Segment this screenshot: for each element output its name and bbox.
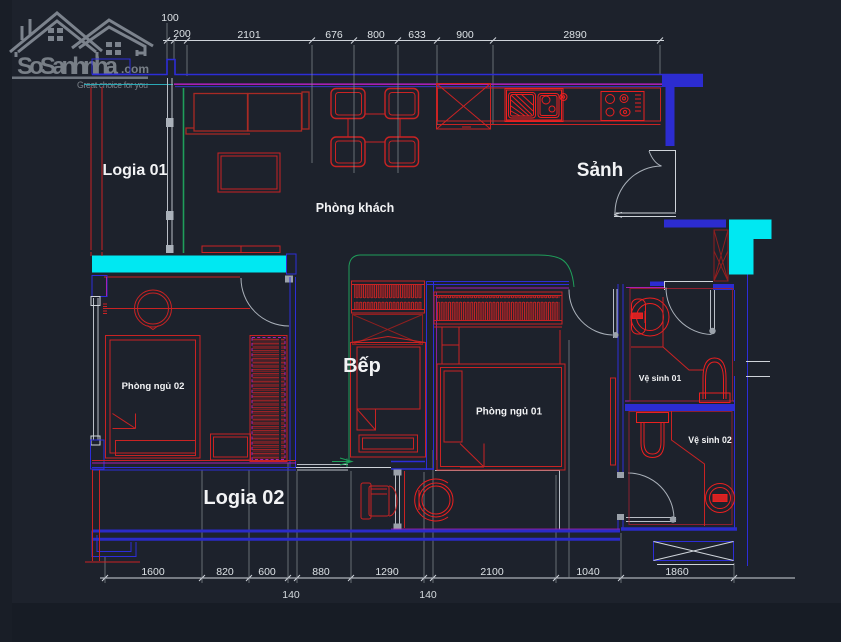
svg-text:140: 140 xyxy=(419,589,437,601)
svg-text:Phòng khách: Phòng khách xyxy=(316,201,394,215)
svg-text:600: 600 xyxy=(258,566,276,578)
svg-text:Phòng ngủ 01: Phòng ngủ 01 xyxy=(476,407,543,418)
svg-text:100: 100 xyxy=(161,12,179,24)
svg-text:880: 880 xyxy=(312,566,330,578)
svg-text:Sảnh: Sảnh xyxy=(577,160,623,181)
svg-text:800: 800 xyxy=(367,29,385,41)
svg-text:1290: 1290 xyxy=(375,566,399,578)
svg-text:Bếp: Bếp xyxy=(343,355,381,377)
svg-text:1860: 1860 xyxy=(665,566,689,578)
svg-text:2101: 2101 xyxy=(237,29,261,41)
svg-text:2100: 2100 xyxy=(480,566,504,578)
svg-text:633: 633 xyxy=(408,29,426,41)
svg-text:200: 200 xyxy=(173,28,191,40)
svg-text:900: 900 xyxy=(456,29,474,41)
svg-text:Vệ sinh 01: Vệ sinh 01 xyxy=(639,373,682,383)
svg-text:676: 676 xyxy=(325,29,343,41)
svg-text:SoSanhnha: SoSanhnha xyxy=(17,53,119,80)
svg-text:1040: 1040 xyxy=(576,566,600,578)
svg-text:1600: 1600 xyxy=(141,566,165,578)
svg-text:Vệ sinh 02: Vệ sinh 02 xyxy=(688,435,732,445)
svg-text:Phòng ngủ 02: Phòng ngủ 02 xyxy=(122,381,185,392)
svg-text:140: 140 xyxy=(282,589,300,601)
svg-text:Logia 01: Logia 01 xyxy=(103,162,168,179)
svg-text:2890: 2890 xyxy=(563,29,587,41)
svg-text:Logia 02: Logia 02 xyxy=(203,487,284,509)
svg-text:820: 820 xyxy=(216,566,234,578)
